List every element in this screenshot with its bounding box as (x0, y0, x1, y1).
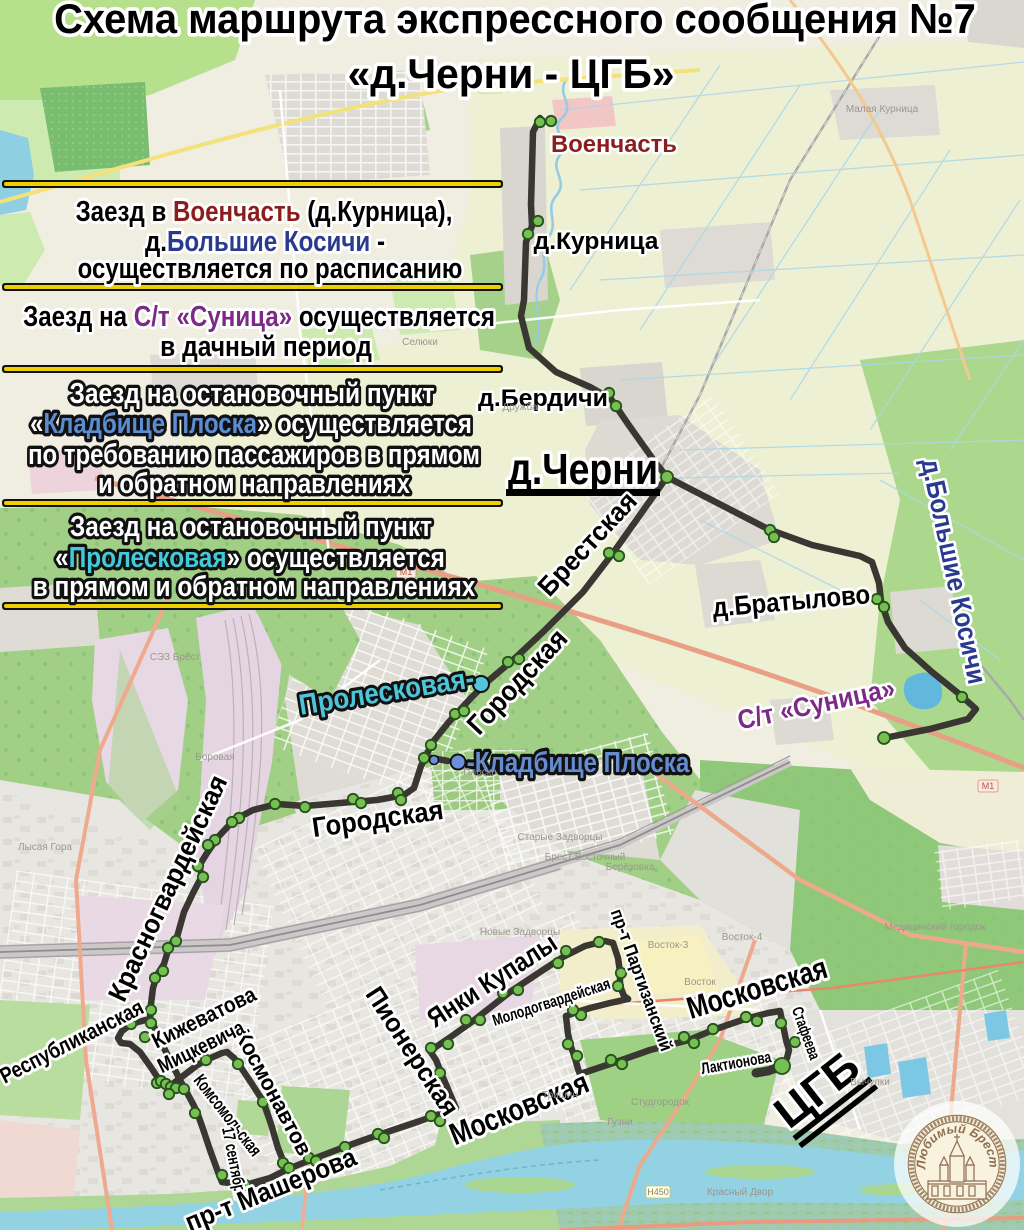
svg-text:-Кладбище Плоска: -Кладбище Плоска (467, 746, 690, 779)
svg-text:осуществляется по расписанию: осуществляется по расписанию (78, 252, 463, 285)
svg-text:Заезд на С/т «Суница» осуществ: Заезд на С/т «Суница» осуществляется (23, 300, 495, 333)
svg-text:Вычулки: Вычулки (850, 1077, 890, 1088)
svg-text:Студгородок: Студгородок (631, 1097, 690, 1108)
svg-text:Медицинский городок: Медицинский городок (884, 922, 986, 933)
svg-text:по требованию пассажиров в пря: по требованию пассажиров в прямом (28, 438, 480, 471)
svg-text:Восток-4: Восток-4 (722, 932, 763, 943)
svg-text:СЭЗ Брест: СЭЗ Брест (150, 652, 201, 663)
svg-text:Заезд на остановочный пункт: Заезд на остановочный пункт (70, 510, 432, 542)
svg-text:Берёзовка: Берёзовка (606, 862, 655, 873)
svg-text:М1: М1 (982, 781, 995, 791)
svg-text:д.Курница: д.Курница (534, 228, 659, 255)
svg-text:в дачный период: в дачный период (160, 330, 372, 362)
svg-text:Восток: Восток (684, 977, 716, 988)
svg-text:д.Бердичи: д.Бердичи (478, 385, 608, 411)
svg-text:Брест Восточный: Брест Восточный (545, 852, 626, 863)
svg-text:д.Черни: д.Черни (508, 444, 658, 494)
svg-text:Н450: Н450 (647, 1187, 669, 1197)
svg-text:Схема маршрута экспрессного со: Схема маршрута экспрессного сообщения №7 (54, 0, 976, 42)
svg-text:Дружба: Дружба (502, 401, 538, 413)
svg-text:Заезд в Военчасть (д.Курница),: Заезд в Военчасть (д.Курница), (76, 195, 453, 228)
svg-text:и обратном направлениях: и обратном направлениях (98, 467, 410, 500)
svg-text:Малая Курница: Малая Курница (846, 104, 919, 115)
svg-text:Гузни: Гузни (607, 1117, 632, 1128)
svg-text:Заезд на остановочный пункт: Заезд на остановочный пункт (69, 377, 434, 409)
svg-text:Селюки: Селюки (402, 337, 438, 348)
svg-text:«Пролесковая» осуществляется: «Пролесковая» осуществляется (55, 541, 445, 573)
svg-text:Старые Задворцы: Старые Задворцы (517, 832, 602, 843)
svg-text:Лысая Гора: Лысая Гора (18, 842, 72, 853)
svg-text:Боровая: Боровая (195, 752, 234, 763)
svg-text:Военчасть: Военчасть (551, 131, 677, 158)
svg-text:«д.Черни - ЦГБ»: «д.Черни - ЦГБ» (348, 50, 675, 97)
svg-text:Плоска: Плоска (463, 767, 497, 778)
svg-text:Тришин: Тришин (542, 1090, 578, 1101)
svg-text:Красный Двор: Красный Двор (707, 1187, 774, 1198)
svg-text:«Кладбище Плоска» осуществляет: «Кладбище Плоска» осуществляется (30, 407, 472, 440)
svg-text:Новые Задворцы: Новые Задворцы (480, 927, 560, 938)
svg-text:в прямом и обратном направлени: в прямом и обратном направлениях (33, 570, 476, 602)
svg-text:Восток-3: Восток-3 (648, 940, 689, 951)
